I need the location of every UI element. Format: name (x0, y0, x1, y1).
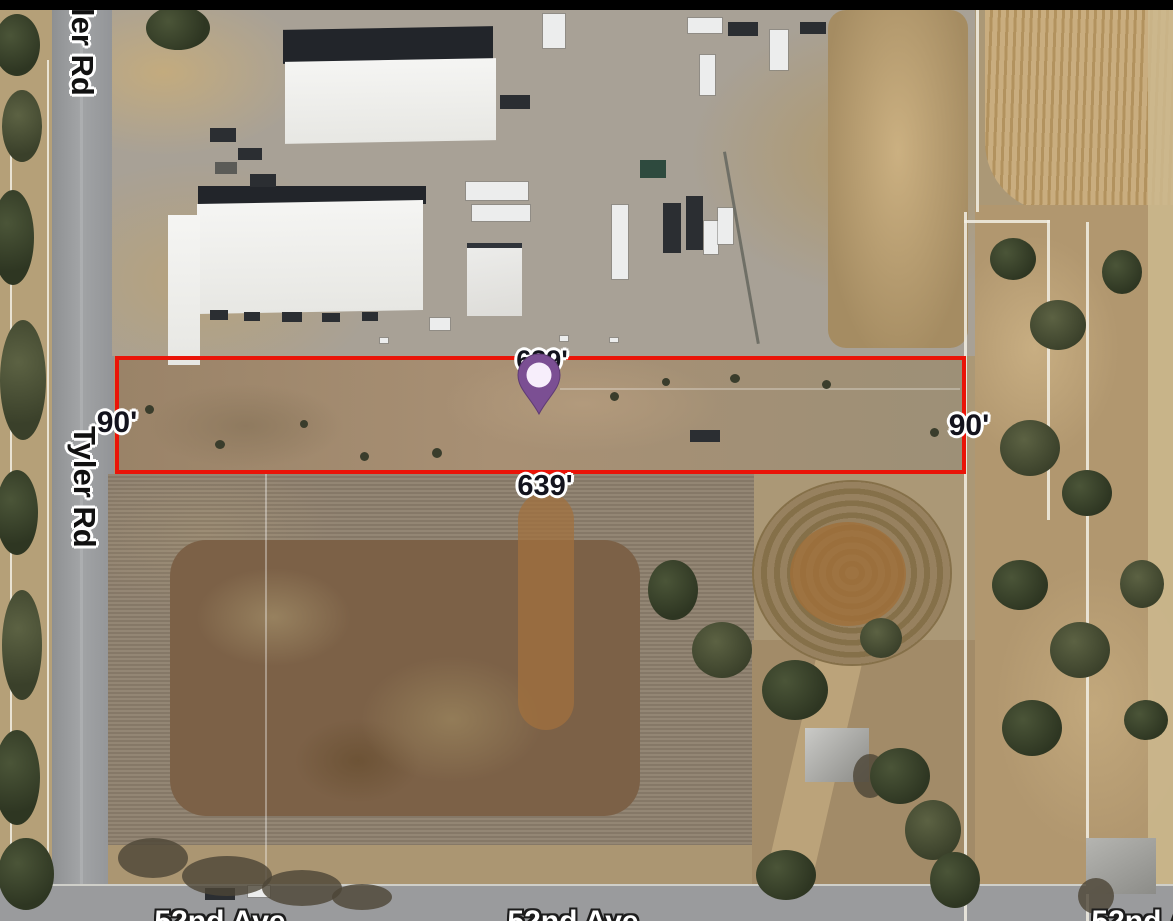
vehicle (430, 318, 450, 330)
tree (1030, 300, 1086, 350)
vehicle (800, 22, 826, 34)
tree (1002, 700, 1062, 756)
plowed-field (108, 474, 754, 874)
house (795, 712, 883, 804)
tilled-field-top-right (985, 10, 1173, 212)
clutter (362, 312, 378, 321)
vehicle (700, 55, 715, 95)
avenue-label-right: 52nd Ave (1072, 905, 1173, 921)
avenue-label-left: 52nd Ave (140, 905, 300, 921)
parcel-bottom-dimension-label: 639' (505, 470, 585, 503)
aerial-parcel-map: 639' 639' 90' 90' ler Rd Tyler Rd 52nd A… (0, 0, 1173, 921)
clutter (610, 338, 618, 342)
tree (146, 6, 210, 50)
tree (1124, 700, 1168, 740)
tree (0, 320, 46, 440)
tree (2, 590, 42, 700)
vehicle (500, 95, 530, 109)
tyler-rd-label-top: ler Rd (64, 8, 100, 96)
house (1078, 828, 1170, 914)
fence-line (964, 212, 967, 921)
fence-line (976, 10, 979, 212)
fence-line (47, 60, 49, 860)
tree (990, 238, 1036, 280)
trailer (686, 196, 703, 250)
vehicle (688, 18, 722, 33)
tree (930, 852, 980, 908)
tree (756, 850, 816, 900)
dirt-patch (828, 10, 968, 348)
tilled-bright-strip (518, 492, 574, 730)
vehicle (770, 30, 788, 70)
parcel-right-dimension-label: 90' (939, 409, 999, 443)
small-building (467, 243, 522, 316)
location-pin-icon[interactable] (515, 352, 563, 416)
tree (762, 660, 828, 720)
vehicle (210, 128, 236, 142)
tree (1120, 560, 1164, 608)
tree (1050, 622, 1110, 678)
warehouse-north (285, 58, 496, 144)
tree-shadow (182, 856, 272, 896)
equipment (640, 160, 666, 178)
trailer (663, 203, 681, 253)
trailer (704, 221, 718, 254)
fence-line (964, 220, 1050, 223)
fence-line (1047, 220, 1050, 520)
clutter (560, 336, 568, 341)
tree (1062, 470, 1112, 516)
tree (2, 90, 42, 162)
vehicle (728, 22, 758, 36)
circular-tilled-core (790, 522, 906, 626)
tree-shadow (332, 884, 392, 910)
tree (692, 622, 752, 678)
top-letterbox-bar (0, 0, 1173, 10)
tree (1102, 250, 1142, 294)
storage-container (472, 205, 530, 221)
tree-shadow (262, 870, 342, 906)
tree (860, 618, 902, 658)
warehouse-south (197, 200, 423, 314)
trailer (612, 205, 628, 279)
tree-shadow (118, 838, 188, 878)
tree (992, 560, 1048, 610)
vehicle (250, 174, 276, 187)
field-seam-line (265, 474, 267, 886)
warehouse-south-wing (168, 215, 200, 365)
vehicle (238, 148, 262, 160)
tree (1000, 420, 1060, 476)
tree (648, 560, 698, 620)
storage-container (466, 182, 528, 200)
vehicle (543, 14, 565, 48)
clutter (244, 312, 260, 321)
tree (870, 748, 930, 804)
tyler-rd-label: Tyler Rd (66, 426, 102, 548)
fence-line (1086, 222, 1089, 921)
avenue-label-center: 52nd Ave (488, 905, 658, 921)
tree (0, 838, 54, 910)
clutter (210, 310, 228, 320)
clutter (380, 338, 388, 343)
tree (905, 800, 961, 860)
far-right-path (1148, 10, 1173, 921)
vehicle (215, 162, 237, 174)
clutter (282, 312, 302, 322)
trailer (718, 208, 733, 244)
clutter (322, 313, 340, 322)
